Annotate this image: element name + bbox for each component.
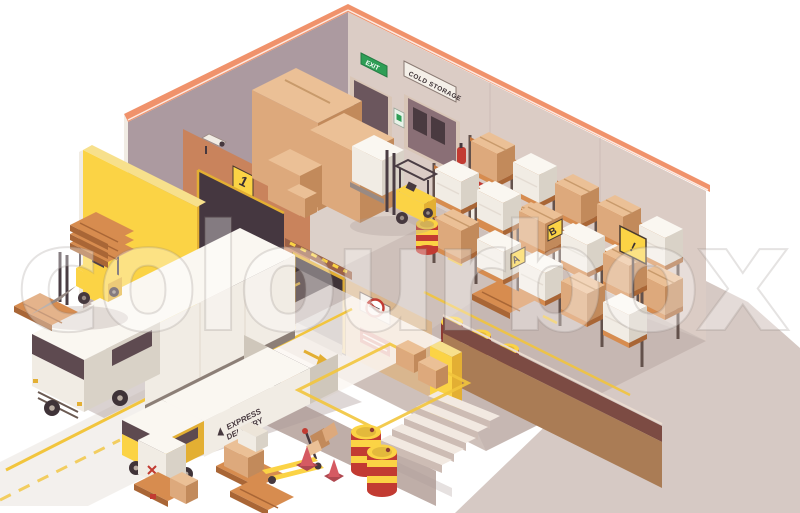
watermark-text: colourbox — [15, 193, 789, 365]
warehouse-scene: EXIT COLD STORAGE — [0, 0, 800, 513]
small-box — [170, 472, 198, 504]
warehouse-illustration: EXIT COLD STORAGE — [0, 0, 800, 513]
